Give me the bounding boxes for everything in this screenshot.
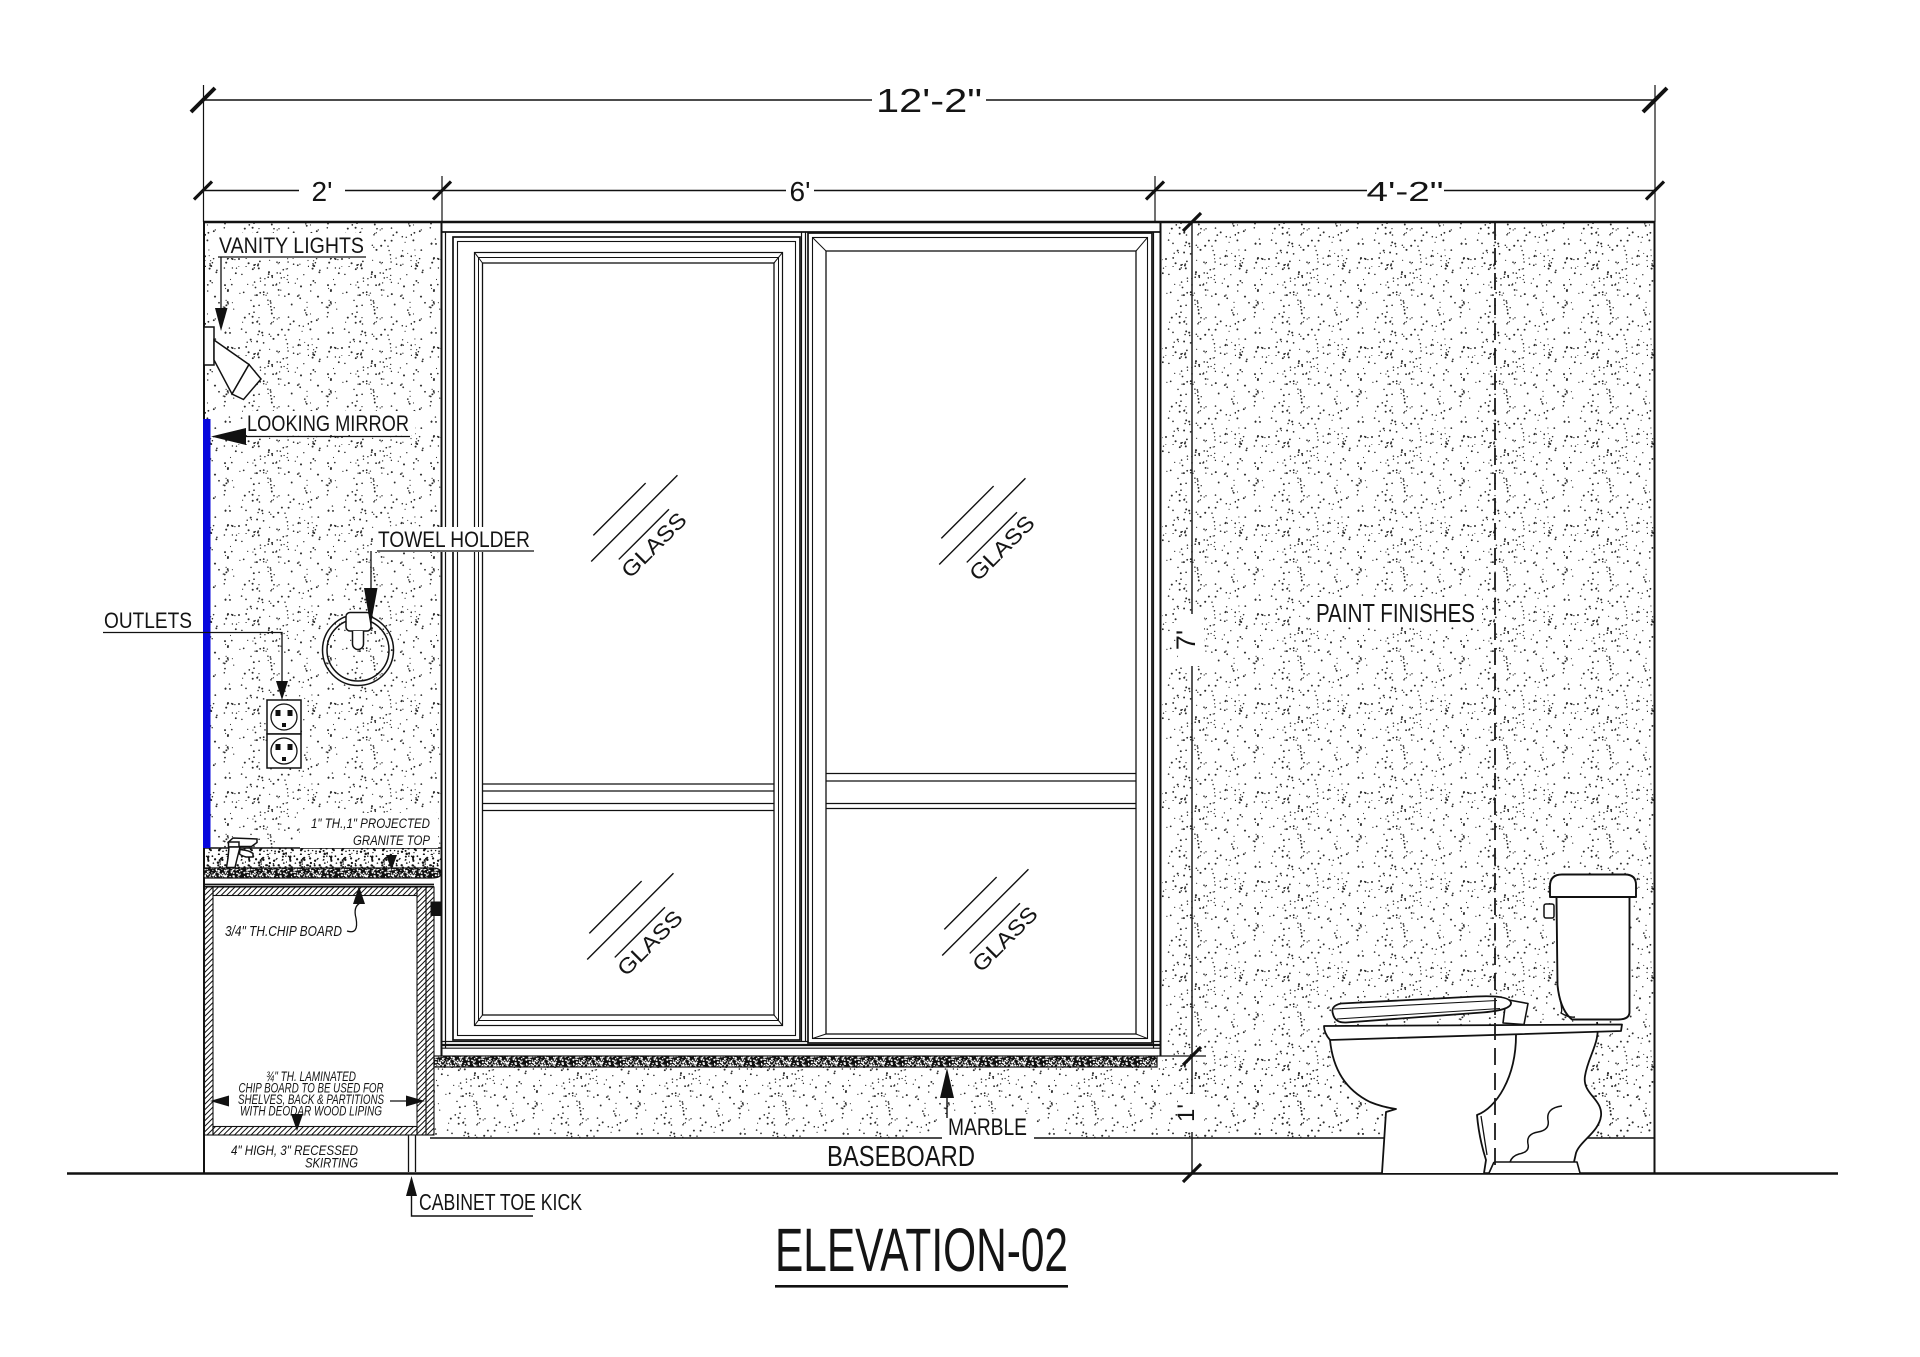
svg-text:7': 7' <box>1171 630 1201 650</box>
svg-text:WITH DEODAR WOOD LIPING: WITH DEODAR WOOD LIPING <box>240 1104 382 1119</box>
svg-text:6': 6' <box>790 176 811 207</box>
svg-text:2': 2' <box>312 176 333 207</box>
svg-text:OUTLETS: OUTLETS <box>104 608 192 633</box>
svg-text:TOWEL HOLDER: TOWEL HOLDER <box>378 527 530 552</box>
svg-text:1': 1' <box>1173 1104 1200 1122</box>
svg-text:MARBLE: MARBLE <box>948 1114 1027 1141</box>
svg-text:4'-2": 4'-2" <box>1367 176 1444 207</box>
svg-text:3/4" TH.CHIP BOARD: 3/4" TH.CHIP BOARD <box>225 924 342 940</box>
svg-text:ELEVATION-02: ELEVATION-02 <box>775 1216 1068 1284</box>
svg-text:PAINT FINISHES: PAINT FINISHES <box>1316 598 1475 628</box>
svg-text:VANITY LIGHTS: VANITY LIGHTS <box>219 233 364 258</box>
svg-text:SKIRTING: SKIRTING <box>305 1155 358 1171</box>
svg-text:GRANITE TOP: GRANITE TOP <box>353 833 430 848</box>
svg-text:LOOKING MIRROR: LOOKING MIRROR <box>247 411 409 436</box>
svg-text:12'-2": 12'-2" <box>876 82 982 119</box>
svg-text:1" TH.,1" PROJECTED: 1" TH.,1" PROJECTED <box>311 816 430 831</box>
svg-text:CABINET TOE KICK: CABINET TOE KICK <box>419 1189 582 1215</box>
svg-text:BASEBOARD: BASEBOARD <box>827 1141 975 1173</box>
